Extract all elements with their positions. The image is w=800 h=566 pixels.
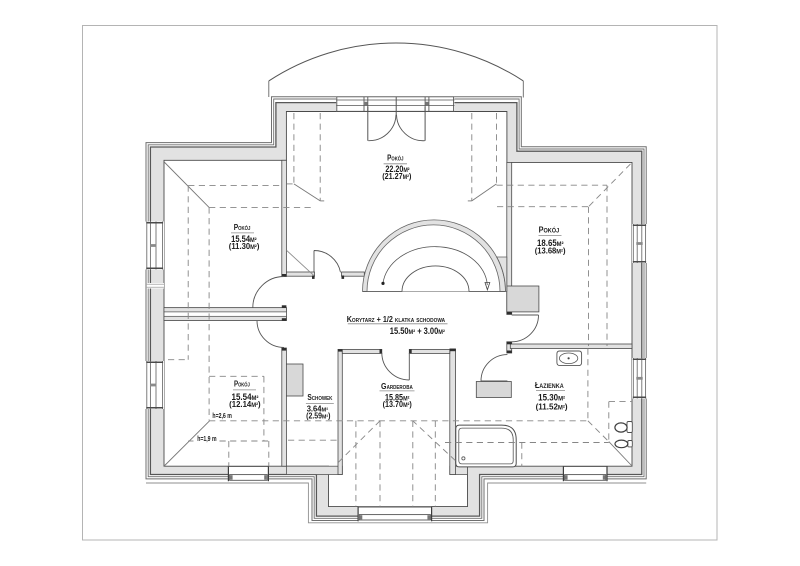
- svg-text:Pokój: Pokój: [234, 222, 251, 232]
- svg-text:Pokój: Pokój: [539, 225, 560, 235]
- svg-text:Łazienka: Łazienka: [535, 380, 564, 390]
- svg-text:Garderoba: Garderoba: [381, 381, 413, 391]
- svg-text:Pokój: Pokój: [387, 153, 403, 163]
- svg-text:Korytarz + 1/2 klatka schodowa: Korytarz + 1/2 klatka schodowa: [347, 315, 446, 324]
- svg-text:(11.52M²): (11.52M²): [536, 403, 568, 412]
- svg-text:15.50M² + 3.00M²: 15.50M² + 3.00M²: [390, 325, 445, 336]
- svg-text:h=2,6 m: h=2,6 m: [212, 412, 232, 420]
- svg-text:h=1,9 m: h=1,9 m: [197, 435, 217, 443]
- svg-text:Pokój: Pokój: [234, 378, 250, 388]
- svg-text:Schowek: Schowek: [307, 392, 332, 402]
